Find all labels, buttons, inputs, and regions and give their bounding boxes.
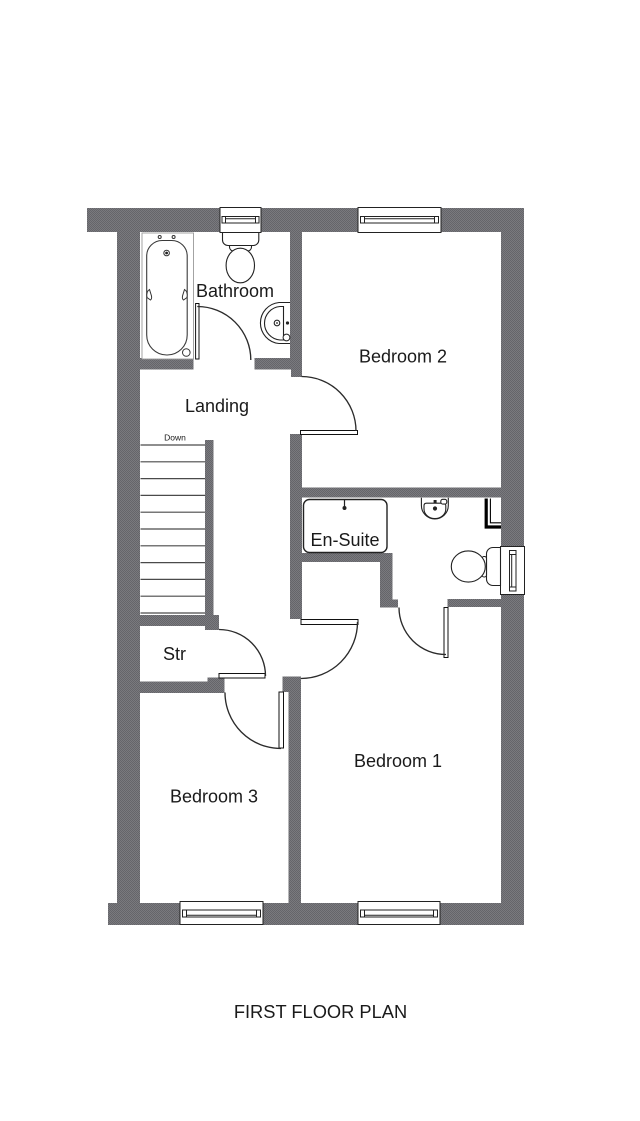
svg-text:Landing: Landing — [185, 396, 249, 416]
svg-text:FIRST FLOOR PLAN: FIRST FLOOR PLAN — [234, 1001, 407, 1022]
svg-text:Bedroom 3: Bedroom 3 — [170, 787, 258, 807]
svg-text:Bathroom: Bathroom — [196, 281, 274, 301]
svg-text:Down: Down — [164, 433, 186, 443]
svg-text:En-Suite: En-Suite — [310, 530, 379, 550]
svg-text:Bedroom 1: Bedroom 1 — [354, 751, 442, 771]
svg-text:Str: Str — [163, 644, 186, 664]
svg-text:Bedroom 2: Bedroom 2 — [359, 347, 447, 367]
